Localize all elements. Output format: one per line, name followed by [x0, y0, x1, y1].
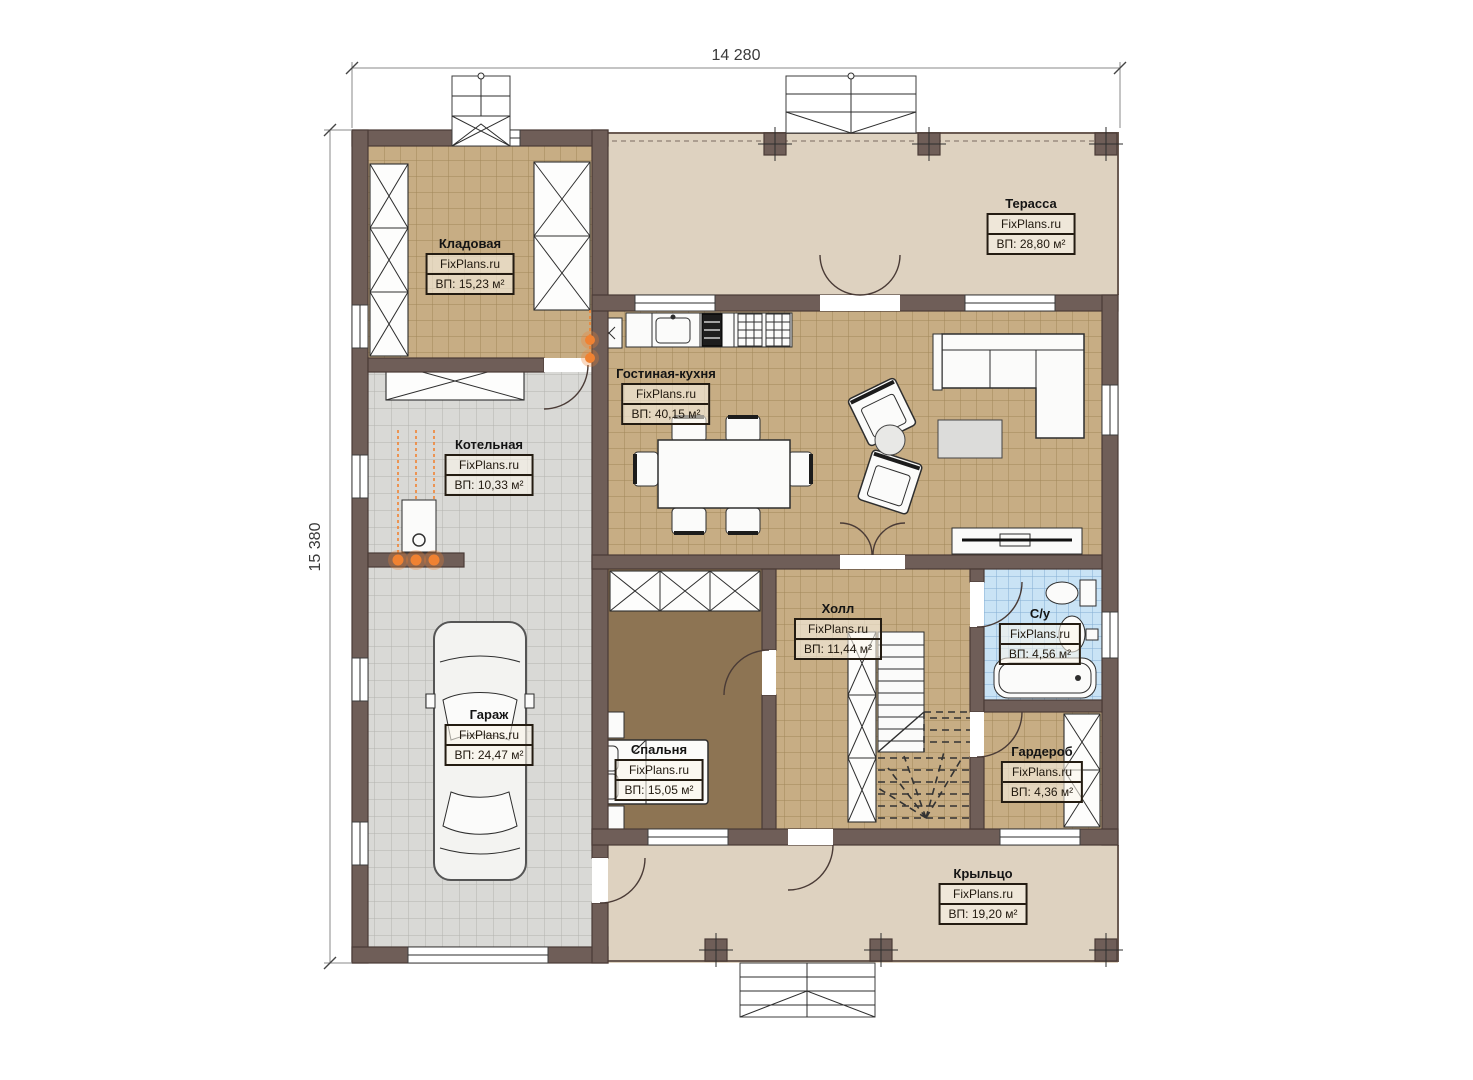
porch-floor: [608, 845, 1118, 963]
room-label-garderob: Гардероб FixPlans.ru ВП: 4,36 м²: [1001, 744, 1083, 803]
room-watermark: FixPlans.ru: [1001, 625, 1079, 643]
room-area: ВП: 15,05 м²: [617, 779, 702, 799]
room-area: ВП: 15,23 м²: [428, 273, 513, 293]
room-watermark: FixPlans.ru: [624, 385, 709, 403]
rear-window: [443, 792, 517, 834]
mirror: [525, 694, 534, 708]
room-watermark: FixPlans.ru: [617, 761, 702, 779]
room-watermark: FixPlans.ru: [796, 620, 880, 638]
room-watermark: FixPlans.ru: [447, 456, 532, 474]
room-name: С/у: [999, 606, 1081, 621]
kitchen-sink: [656, 318, 690, 343]
dimension-height-label: 15 380: [307, 522, 324, 571]
room-watermark: FixPlans.ru: [1003, 763, 1081, 781]
room-area: ВП: 10,33 м²: [447, 474, 532, 494]
room-info-box: FixPlans.ru ВП: 19,20 м²: [939, 883, 1028, 925]
room-area: ВП: 28,80 м²: [989, 233, 1074, 253]
room-info-box: FixPlans.ru ВП: 10,33 м²: [445, 454, 534, 496]
room-name: Гараж: [445, 707, 534, 722]
tv-console: [952, 528, 1082, 554]
room-label-kryltso: Крыльцо FixPlans.ru ВП: 19,20 м²: [939, 866, 1028, 925]
room-label-su: С/у FixPlans.ru ВП: 4,56 м²: [999, 606, 1081, 665]
room-info-box: FixPlans.ru ВП: 28,80 м²: [987, 213, 1076, 255]
chimney-block: [452, 73, 510, 146]
room-area: ВП: 40,15 м²: [624, 403, 709, 423]
floor-plan-canvas: 14 280 15 380: [0, 0, 1473, 1080]
room-info-box: FixPlans.ru ВП: 15,05 м²: [615, 759, 704, 801]
room-info-box: FixPlans.ru ВП: 40,15 м²: [622, 383, 711, 425]
room-name: Крыльцо: [939, 866, 1028, 881]
porch-entry-steps: [740, 963, 875, 1017]
room-name: Спальня: [615, 742, 704, 757]
side-table: [875, 425, 905, 455]
room-area: ВП: 11,44 м²: [796, 638, 880, 658]
floorplan-page: 14 280 15 380 Кладовая FixPlans.ru ВП: 1…: [0, 0, 1473, 1080]
room-name: Терасса: [987, 196, 1076, 211]
dimension-left: 15 380: [307, 124, 352, 969]
room-label-kotelnaya: Котельная FixPlans.ru ВП: 10,33 м²: [445, 437, 534, 496]
room-watermark: FixPlans.ru: [989, 215, 1074, 233]
room-info-box: FixPlans.ru ВП: 15,23 м²: [426, 253, 515, 295]
room-area: ВП: 24,47 м²: [447, 744, 532, 764]
hall-closet: [848, 632, 876, 822]
room-area: ВП: 4,36 м²: [1003, 781, 1081, 801]
room-watermark: FixPlans.ru: [428, 255, 513, 273]
room-name: Котельная: [445, 437, 534, 452]
terrace-entry-steps: [786, 73, 916, 133]
room-label-kladovaya: Кладовая FixPlans.ru ВП: 15,23 м²: [426, 236, 515, 295]
dining-table: [658, 440, 790, 508]
room-name: Гостиная-кухня: [616, 366, 716, 381]
mirror: [426, 694, 435, 708]
room-name: Холл: [794, 601, 882, 616]
room-info-box: FixPlans.ru ВП: 11,44 м²: [794, 618, 882, 660]
room-info-box: FixPlans.ru ВП: 24,47 м²: [445, 724, 534, 766]
room-label-terrassa: Терасса FixPlans.ru ВП: 28,80 м²: [987, 196, 1076, 255]
room-info-box: FixPlans.ru ВП: 4,56 м²: [999, 623, 1081, 665]
room-area: ВП: 4,56 м²: [1001, 643, 1079, 663]
room-label-garazh: Гараж FixPlans.ru ВП: 24,47 м²: [445, 707, 534, 766]
room-area: ВП: 19,20 м²: [941, 903, 1026, 923]
bedroom-closet: [610, 571, 760, 611]
room-label-spalnya: Спальня FixPlans.ru ВП: 15,05 м²: [615, 742, 704, 801]
room-name: Гардероб: [1001, 744, 1083, 759]
room-label-gostinaya: Гостиная-кухня FixPlans.ru ВП: 40,15 м²: [616, 366, 716, 425]
toilet: [1046, 580, 1096, 606]
dimension-width-label: 14 280: [712, 47, 761, 64]
room-name: Кладовая: [426, 236, 515, 251]
room-watermark: FixPlans.ru: [941, 885, 1026, 903]
room-info-box: FixPlans.ru ВП: 4,36 м²: [1001, 761, 1083, 803]
room-watermark: FixPlans.ru: [447, 726, 532, 744]
room-label-holl: Холл FixPlans.ru ВП: 11,44 м²: [794, 601, 882, 660]
coffee-table: [938, 420, 1002, 458]
